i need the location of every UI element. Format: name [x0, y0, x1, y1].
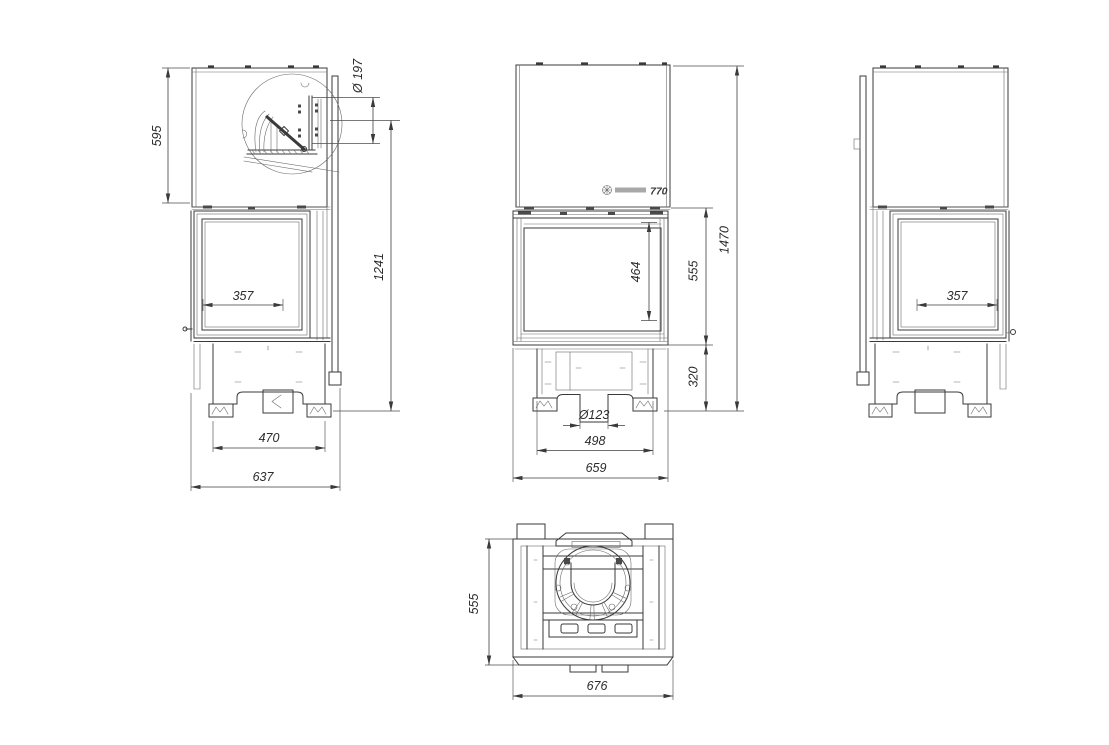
right-dimensions: 357: [917, 289, 997, 311]
view-side-right: 357: [854, 67, 1016, 418]
front-dimensions: 464 555 320 1470 Ø123 498 659: [513, 66, 744, 482]
view-side-left: 595 Ø 197 1241 357 470 637: [150, 58, 400, 491]
dim-label-659: 659: [586, 461, 607, 475]
dim-label-flue-diameter: Ø 197: [351, 58, 365, 94]
dim-label-637: 637: [253, 470, 275, 484]
left-base: [194, 338, 331, 417]
dim-label-left-357: 357: [233, 289, 255, 303]
dim-label-555-front: 555: [687, 261, 701, 282]
dim-label-1470: 1470: [718, 226, 732, 254]
right-top-casing: [873, 67, 1008, 208]
right-rear-panel: [854, 76, 869, 385]
dim-label-498: 498: [585, 434, 606, 448]
dim-label-air-inlet: Ø123: [578, 408, 610, 422]
front-door: [513, 211, 668, 345]
left-rear-panel: [329, 76, 341, 385]
dim-label-676: 676: [587, 679, 608, 693]
dim-label-555-plan: 555: [467, 594, 481, 615]
brand-model-label: 770: [650, 186, 668, 198]
dim-label-470: 470: [259, 431, 280, 445]
dim-label-1241: 1241: [372, 253, 386, 281]
right-door: [873, 207, 1016, 341]
view-top-plan: 555 676: [467, 524, 673, 700]
drawing-canvas: 595 Ø 197 1241 357 470 637: [0, 0, 1109, 745]
right-base: [869, 338, 1006, 417]
dim-label-464: 464: [629, 262, 643, 283]
dim-label-right-357: 357: [947, 289, 969, 303]
brand-name-mark: [615, 188, 646, 193]
front-top-casing: [516, 64, 670, 208]
left-door: [183, 207, 327, 341]
dim-label-595: 595: [150, 126, 164, 147]
dim-label-320: 320: [687, 367, 701, 388]
view-front: 770: [513, 64, 744, 483]
technical-drawing-sheet: 595 Ø 197 1241 357 470 637: [0, 0, 1109, 745]
plan-flue-collar: [555, 546, 631, 620]
brand-logo: 770: [603, 186, 668, 198]
damper-strut: [266, 116, 305, 150]
